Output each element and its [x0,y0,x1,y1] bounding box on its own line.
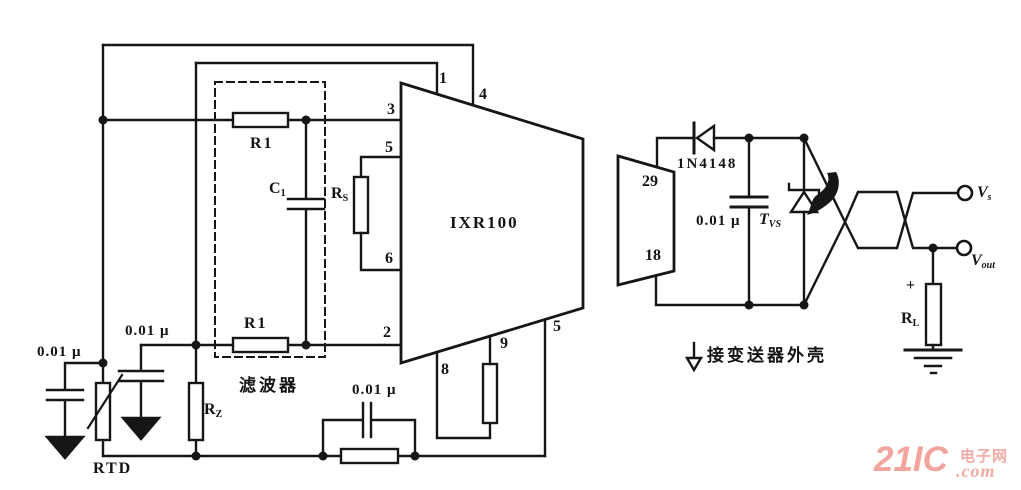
wire-pin18 [656,276,804,305]
connector-pin-18: 18 [645,248,661,264]
ic-pin-2: 2 [383,325,391,341]
terminal-vout [957,241,971,255]
schematic-canvas: 0.01 μ RTD 0.01 μ RZ R1 C1 R1 滤波器 RS 0.0… [0,0,1021,490]
ic-pin-1: 1 [439,71,447,87]
rl-label: RL [901,311,919,329]
diode-label: 1N4148 [677,157,737,172]
tvs-symbol [789,138,839,305]
ic-pin-5-bottom: 5 [553,319,561,335]
rs-label: RS [331,186,348,204]
ground-symbol-left [47,437,83,458]
rtd-label: RTD [93,461,132,477]
ic-pin-3: 3 [387,102,395,118]
chassis-arrow-icon [687,343,701,370]
ic-pin-4: 4 [479,87,487,103]
ic-pin-6: 6 [385,251,393,267]
resistor-bottom [341,449,398,463]
ic-pin-9: 9 [500,336,508,352]
resistor-r1-top [233,113,288,127]
watermark: 21IC 电子网 .com [874,440,1020,484]
resistor-r1-bottom [233,338,288,352]
parallel-rc [323,403,415,463]
ground-symbol-mid [123,418,159,439]
circuit-drawing [0,0,1021,490]
capacitor-c1 [288,120,324,345]
capacitor-left [119,345,163,439]
resistor-rz [189,383,203,440]
filter-r1-top-label: R1 [250,136,274,152]
filter-c1-label: C1 [269,181,286,199]
connector-pin-29: 29 [642,174,658,190]
terminal-vs [958,186,972,200]
capacitor-far-left [47,363,103,458]
vs-terminal-label: Vs [977,185,992,203]
watermark-brand: 21IC [874,442,948,477]
cap-bottom-value: 0.01 μ [352,383,397,398]
filter-caption: 滤波器 [239,377,299,394]
cap-right-value: 0.01 μ [696,214,741,229]
ic-pin-8: 8 [441,362,449,378]
rtd-symbol [88,375,122,440]
vout-terminal-label: Vout [971,253,995,271]
chassis-note: 接变送器外壳 [707,347,827,364]
rl-polarity: + [906,278,915,294]
ic-name: IXR100 [450,214,519,231]
cap-left-value: 0.01 μ [125,324,170,339]
watermark-suffix-bottom: .com [956,461,996,482]
pin8-pin9-loop [437,336,497,438]
twisted-pair [804,138,958,305]
filter-r1-bottom-label: R1 [244,316,268,332]
tvs-label: TVS [759,212,781,230]
diode-symbol [694,123,714,153]
earth-ground [905,350,961,373]
resistor-rs [354,157,401,270]
ic-pin-5-left: 5 [385,140,393,156]
rz-label: RZ [204,402,222,420]
resistor-rl [926,248,941,350]
cap-far-left-value: 0.01 μ [37,345,82,360]
